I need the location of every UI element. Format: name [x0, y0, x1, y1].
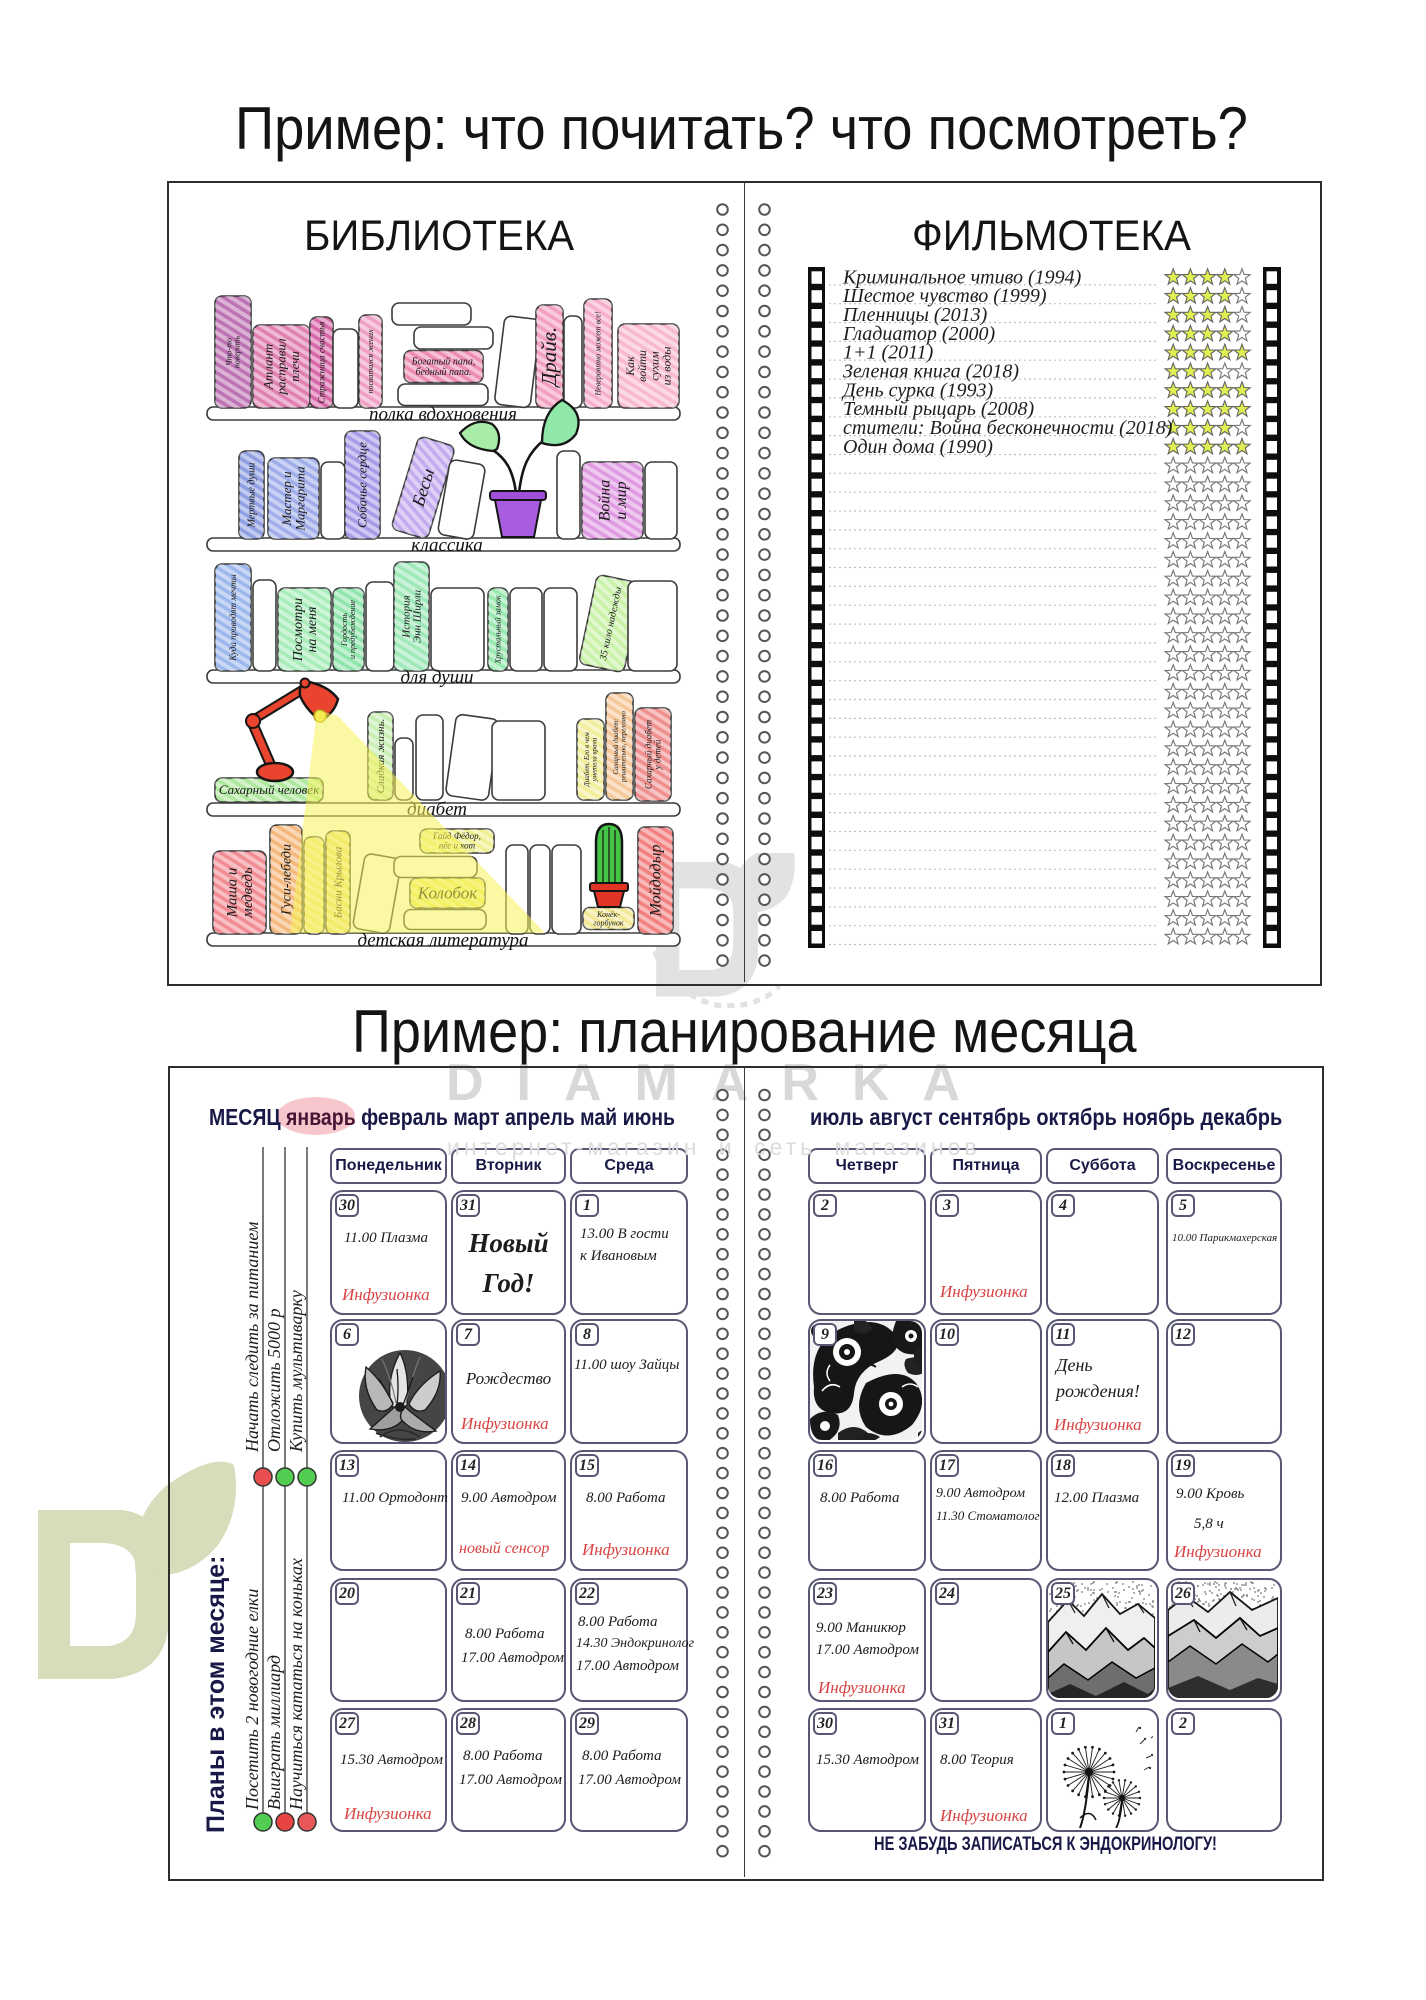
svg-text:полка вдохновения: полка вдохновения [369, 404, 517, 425]
svg-text:Отложить 5000 р: Отложить 5000 р [264, 1308, 284, 1452]
svg-text:для души: для души [400, 667, 473, 688]
svg-text:Планы в этом месяце:: Планы в этом месяце: [202, 1556, 230, 1833]
svg-text:Сахарный диабет:решительно, пе: Сахарный диабет:решительно, переломно [612, 711, 627, 783]
svg-text:Куда приводят мечты: Куда приводят мечты [228, 574, 238, 662]
svg-text:Мертвые души: Мертвые души [247, 463, 258, 529]
svg-text:Невероятно может все!: Невероятно может все! [594, 311, 603, 397]
svg-text:Начать следить за питанием: Начать следить за питанием [242, 1221, 262, 1453]
svg-text:Сахарный человек: Сахарный человек [219, 782, 320, 797]
svg-text:детская литература: детская литература [357, 930, 528, 951]
svg-text:Один дома (1990): Один дома (1990) [843, 436, 993, 458]
svg-text:Что-топоверить: Что-топоверить [225, 335, 242, 368]
svg-text:Маша имедведь: Маша имедведь [225, 867, 256, 919]
svg-text:Выиграть миллиард: Выиграть миллиард [264, 1655, 284, 1810]
svg-text:посватался жених: посватался жених [366, 329, 375, 394]
svg-text:Конёк-горбунок: Конёк-горбунок [593, 910, 624, 927]
svg-text:ИсторияЭнн Ширли: ИсторияЭнн Ширли [400, 589, 423, 643]
svg-text:Богатый папа,бедный папа.: Богатый папа,бедный папа. [411, 356, 476, 378]
svg-text:Научиться кататься на коньках: Научиться кататься на коньках [286, 1558, 306, 1811]
svg-text:Мойдодыр: Мойдодыр [648, 845, 665, 918]
svg-text:Собачье сердце: Собачье сердце [355, 442, 370, 528]
svg-text:Посетить 2 новогодние елки: Посетить 2 новогодние елки [242, 1589, 262, 1811]
svg-text:Драйв.: Драйв. [537, 327, 561, 388]
svg-text:Войнаи мир: Войнаи мир [597, 480, 630, 522]
svg-text:Диабет. Его в чемуметели врачи: Диабет. Его в чемуметели врачи [583, 732, 598, 788]
svg-text:классика: классика [411, 535, 483, 556]
svg-text:Стражница счастья: Стражница счастья [316, 322, 326, 404]
svg-text:Посмотрина меня: Посмотрина меня [291, 598, 320, 662]
svg-text:Купить мультиварку: Купить мультиварку [286, 1290, 306, 1453]
svg-text:Мастер иМаргарита: Мастер иМаргарита [279, 466, 307, 532]
svg-text:Хрустальный замок: Хрустальный замок [494, 595, 503, 665]
svg-text:Гуси-лебеди: Гуси-лебеди [280, 844, 295, 916]
